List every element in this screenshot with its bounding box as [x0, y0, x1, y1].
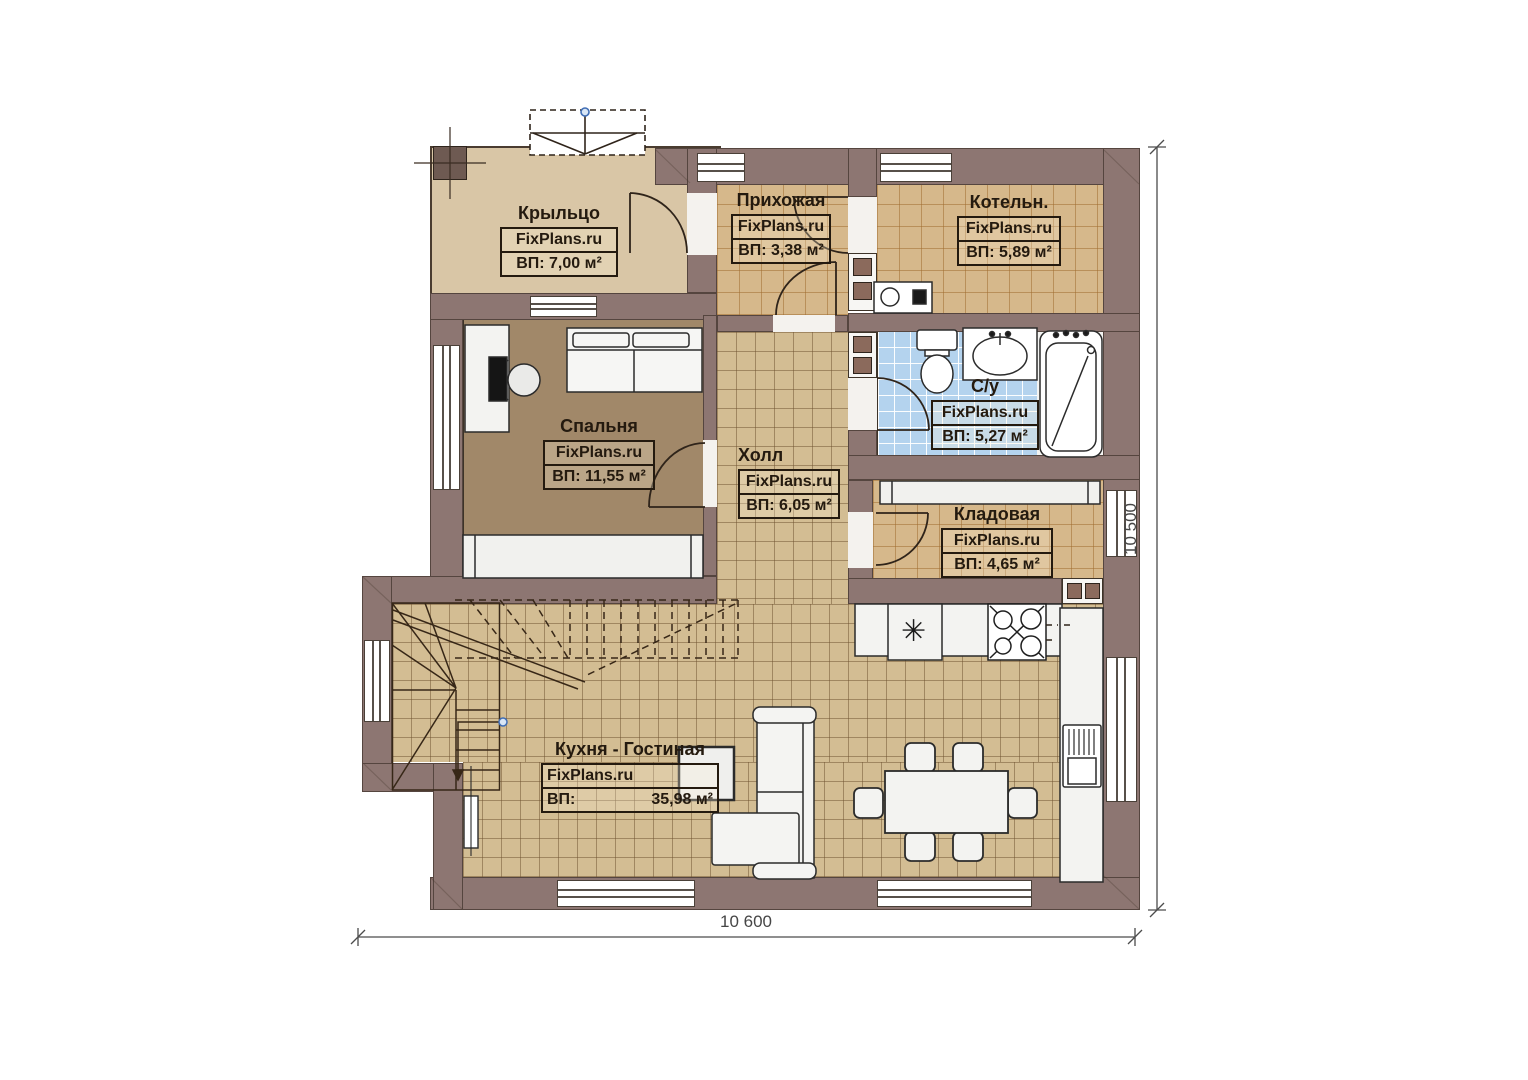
label-hallway: Прихожая FixPlans.ru ВП: 3,38 м²: [731, 190, 831, 264]
wardrobe-bedroom: [463, 535, 703, 578]
label-porch: Крыльцо FixPlans.ru ВП: 7,00 м²: [500, 203, 618, 277]
brand-watermark: FixPlans.ru: [545, 442, 653, 464]
bed: [567, 328, 702, 392]
room-name: Крыльцо: [500, 203, 618, 224]
room-area: ВП: 7,00 м²: [502, 251, 616, 275]
label-kitchen-living: Кухня - Гостиная FixPlans.ru ВП: 35,98 м…: [541, 739, 719, 813]
entry-door-arc: [630, 193, 687, 253]
boiler-unit: [874, 282, 932, 313]
dining-table: [854, 743, 1037, 861]
brand-watermark: FixPlans.ru: [733, 216, 829, 238]
brand-watermark: FixPlans.ru: [543, 765, 717, 787]
label-boiler: Котельн. FixPlans.ru ВП: 5,89 м²: [957, 192, 1061, 266]
stairs-winder: [392, 603, 500, 790]
dimension-line-right: [1148, 140, 1166, 917]
room-name: Кладовая: [941, 504, 1053, 525]
room-name: Спальня: [543, 416, 655, 437]
brand-watermark: FixPlans.ru: [740, 471, 838, 493]
room-area: ВП: 6,05 м²: [740, 493, 838, 517]
room-area: ВП: 5,89 м²: [959, 240, 1059, 264]
stove-icon: [988, 604, 1046, 660]
fridge-icon: [1063, 725, 1101, 787]
brand-watermark: FixPlans.ru: [943, 530, 1051, 552]
room-name: С/у: [931, 376, 1039, 397]
room-area: ВП: 35,98 м²: [543, 787, 717, 811]
room-name: Холл: [738, 445, 840, 466]
fixplans-box: FixPlans.ru ВП: 5,89 м²: [957, 216, 1061, 266]
room-area: ВП: 5,27 м²: [933, 424, 1037, 448]
bathroom-door-arc: [877, 378, 929, 430]
label-bathroom: С/у FixPlans.ru ВП: 5,27 м²: [931, 376, 1039, 450]
brand-watermark: FixPlans.ru: [933, 402, 1037, 424]
fixplans-box: FixPlans.ru ВП: 11,55 м²: [543, 440, 655, 490]
bathtub-icon: [1040, 331, 1102, 458]
porch-steps: [530, 108, 645, 155]
room-area: ВП: 3,38 м²: [733, 238, 829, 262]
fixplans-box: FixPlans.ru ВП: 7,00 м²: [500, 227, 618, 277]
brand-watermark: FixPlans.ru: [959, 218, 1059, 240]
dimension-bottom: 10 600: [696, 912, 796, 932]
radiator-icon: [464, 766, 478, 856]
room-area-value: 35,98 м²: [651, 790, 713, 810]
kitchen-sink-icon: ✳: [901, 617, 926, 647]
bedroom-door-arc: [649, 443, 705, 507]
room-name: Котельн.: [957, 192, 1061, 213]
room-area: ВП: 11,55 м²: [545, 464, 653, 488]
wardrobe-storage: [880, 481, 1100, 504]
fixplans-box: FixPlans.ru ВП: 35,98 м²: [541, 763, 719, 813]
room-area-prefix: ВП:: [547, 790, 575, 810]
stairs-break-line: [393, 610, 585, 689]
fixplans-box: FixPlans.ru ВП: 5,27 м²: [931, 400, 1039, 450]
label-storage: Кладовая FixPlans.ru ВП: 4,65 м²: [941, 504, 1053, 578]
room-area: ВП: 4,65 м²: [943, 552, 1051, 576]
stairs-upper-flight-dashed: [455, 600, 738, 676]
fixplans-box: FixPlans.ru ВП: 6,05 м²: [738, 469, 840, 519]
sink-icon: [963, 328, 1037, 380]
hallway-hall-door-arc: [776, 262, 836, 315]
fixplans-box: FixPlans.ru ВП: 3,38 м²: [731, 214, 831, 264]
room-name: Прихожая: [731, 190, 831, 211]
label-hall: Холл FixPlans.ru ВП: 6,05 м²: [738, 445, 840, 519]
desk: [465, 325, 540, 432]
room-name: Кухня - Гостиная: [541, 739, 719, 760]
fixplans-box: FixPlans.ru ВП: 4,65 м²: [941, 528, 1053, 578]
dimension-right: 10 500: [1121, 479, 1141, 579]
brand-watermark: FixPlans.ru: [502, 229, 616, 251]
floor-plan-canvas: ✳: [0, 0, 1528, 1080]
storage-door-arc: [876, 513, 928, 565]
column-crosshair-icon: [414, 127, 486, 199]
label-bedroom: Спальня FixPlans.ru ВП: 11,55 м²: [543, 416, 655, 490]
